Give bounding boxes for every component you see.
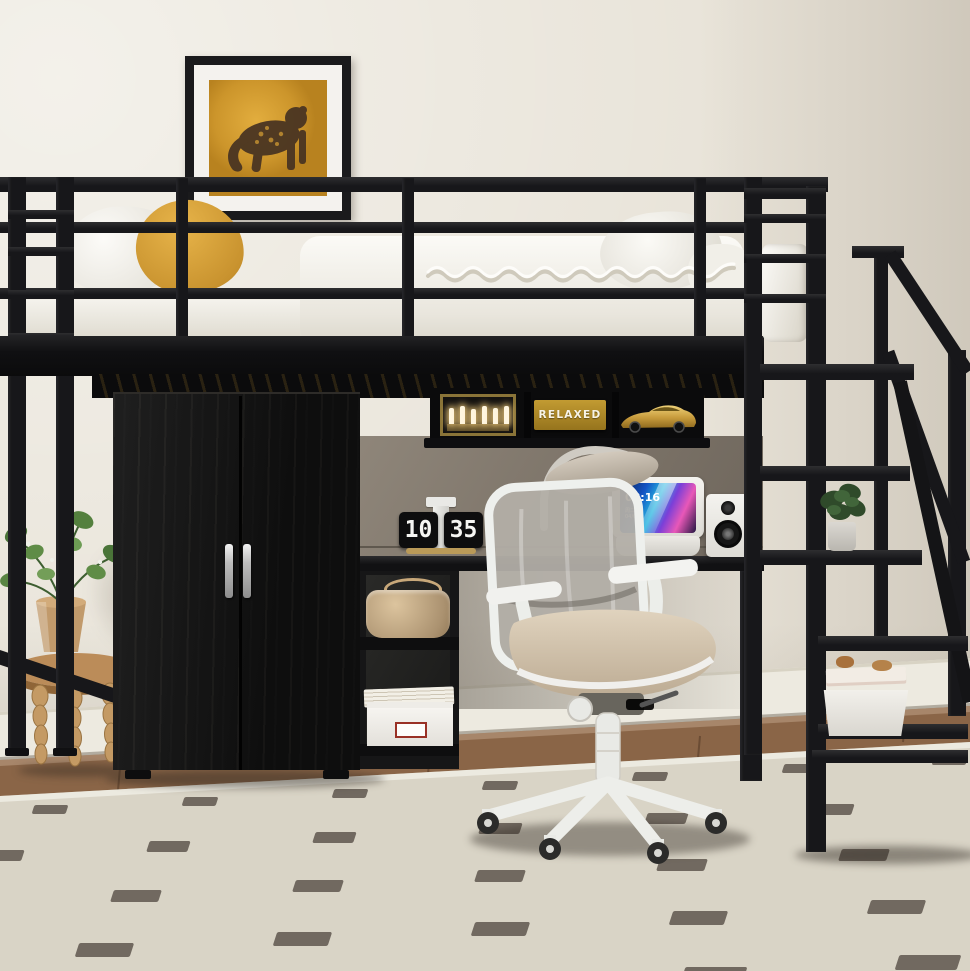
stair-step-4	[818, 636, 968, 651]
bed-platform	[0, 336, 764, 376]
head-ladder-rung-2	[8, 247, 74, 256]
rug-dash	[470, 922, 529, 936]
rug-dash	[895, 955, 962, 970]
stair-books	[826, 667, 906, 684]
guardrail-post-3	[694, 178, 706, 346]
stair-storage-bin	[822, 690, 910, 736]
candle	[482, 406, 487, 424]
candle	[504, 406, 509, 424]
chair-base	[492, 783, 714, 843]
rug-dash	[0, 850, 24, 861]
rug-dash	[866, 900, 925, 914]
candle	[449, 408, 454, 424]
rug-dash	[681, 967, 748, 971]
bed-foot-left-1	[5, 748, 29, 756]
rug-dash	[668, 911, 727, 925]
wardrobe-handle-right	[243, 544, 251, 598]
rug-dash	[292, 880, 344, 892]
stairs-top-rail	[744, 188, 826, 199]
rug-dash	[312, 832, 356, 843]
rug-dash	[474, 870, 526, 882]
bedroom-scene: RELAXED 10 35 08:	[0, 0, 970, 971]
box-label	[395, 722, 427, 738]
bed-post-left-inner	[56, 177, 74, 749]
rug-dash	[32, 805, 69, 814]
snack-2	[872, 660, 892, 671]
candle	[460, 406, 465, 424]
wardrobe-door-seam	[239, 396, 242, 770]
stairs-rung-3	[744, 294, 826, 303]
stairs-rung-1	[744, 214, 826, 223]
rug-dash	[272, 932, 331, 946]
candle	[471, 409, 476, 424]
stair-plant-pot	[828, 522, 856, 551]
bed-foot-left-2	[53, 748, 77, 756]
chair-casters	[477, 809, 727, 864]
head-ladder-rung-1	[8, 210, 74, 219]
rug-dash	[74, 943, 133, 957]
rug-dash	[332, 789, 369, 798]
office-chair	[430, 425, 750, 870]
guardrail-post-1	[176, 178, 188, 346]
rug-dash	[182, 797, 219, 806]
chair-column	[596, 713, 620, 785]
wardrobe	[113, 392, 360, 770]
bed-post-left-outer	[8, 177, 26, 749]
candle	[493, 408, 498, 424]
wardrobe-foot-left	[125, 770, 151, 779]
stair-step-3	[760, 550, 922, 565]
stair-bottom-rail	[812, 750, 968, 763]
wardrobe-foot-right	[323, 770, 349, 779]
stairs-rung-2	[744, 254, 826, 263]
head-ladder-rung-3	[8, 290, 74, 299]
chair-seat	[509, 610, 716, 698]
rug-dash	[146, 841, 190, 852]
wardrobe-handle-left	[225, 544, 233, 598]
stair-step-top	[760, 364, 914, 380]
rug-dash	[110, 890, 162, 902]
snack-1	[836, 656, 854, 668]
picture-frame	[185, 56, 351, 220]
guardrail-post-2	[402, 178, 414, 346]
guardrail-upper	[0, 222, 762, 233]
guardrail-lower	[0, 288, 762, 299]
chair-mechanism	[568, 693, 676, 721]
